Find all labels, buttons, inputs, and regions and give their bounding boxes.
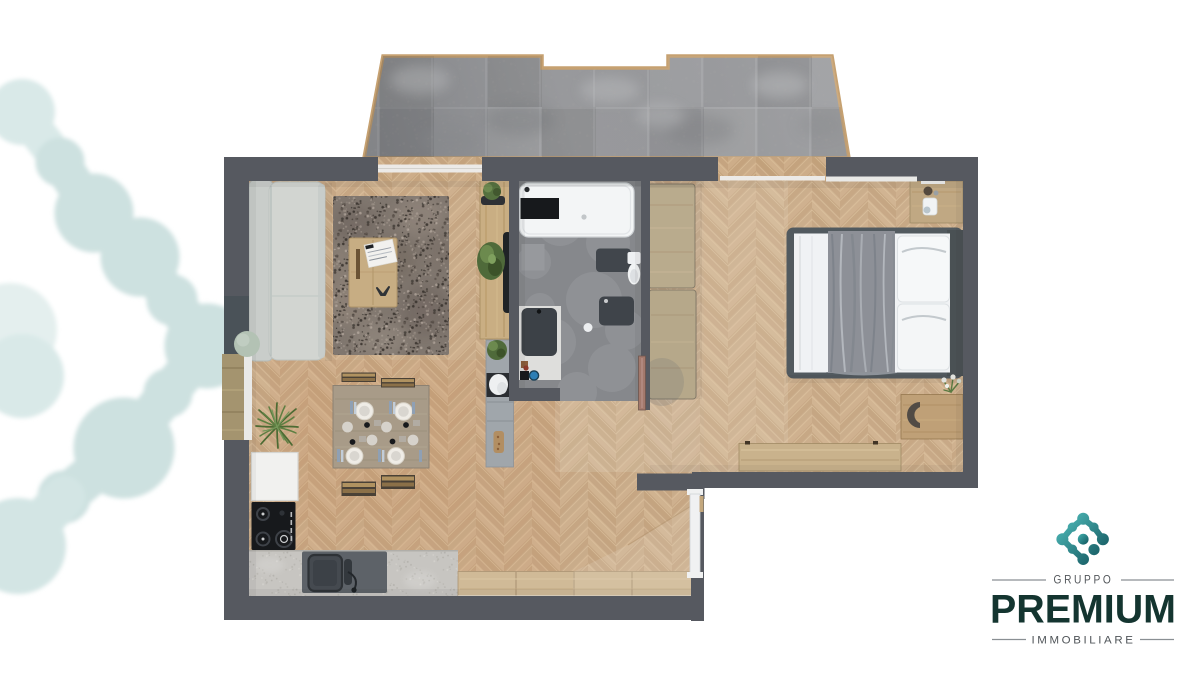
svg-text:PREMIUM: PREMIUM [990,588,1176,632]
svg-text:GRUPPO: GRUPPO [1054,575,1114,587]
svg-text:IMMOBILIARE: IMMOBILIARE [1032,635,1136,647]
